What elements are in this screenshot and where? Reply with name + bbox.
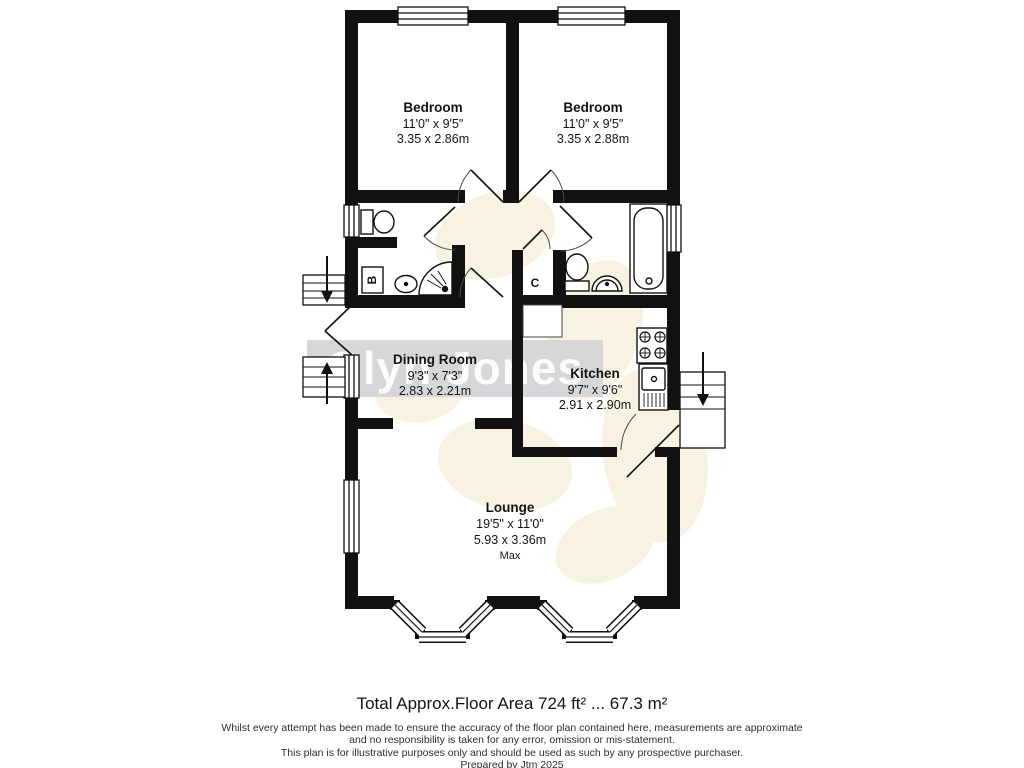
- svg-text:5.93 x 3.36m: 5.93 x 3.36m: [474, 533, 546, 547]
- svg-text:11'0" x 9'5": 11'0" x 9'5": [563, 117, 624, 131]
- entrance-steps-upper: [303, 256, 345, 305]
- lounge-side-window: [344, 480, 359, 553]
- bedroom-1-label: Bedroom 11'0" x 9'5" 3.35 x 2.86m: [397, 100, 469, 146]
- bedroom-2-label: Bedroom 11'0" x 9'5" 3.35 x 2.88m: [557, 100, 629, 146]
- svg-text:2.91 x 2.90m: 2.91 x 2.90m: [559, 398, 631, 412]
- svg-text:Bedroom: Bedroom: [403, 100, 462, 115]
- svg-text:Dining Room: Dining Room: [393, 352, 477, 367]
- svg-text:2.83 x 2.21m: 2.83 x 2.21m: [399, 384, 471, 398]
- cupboard-marker: C: [531, 276, 540, 290]
- toilet-icon-bathroom: [565, 254, 589, 291]
- bath-icon: [630, 204, 667, 293]
- svg-text:Max: Max: [500, 550, 521, 562]
- hob-icon: [637, 328, 667, 363]
- disclaimer-line-2: and no responsibility is taken for any e…: [0, 734, 1024, 746]
- floor-plan-page: Glyn Jones: [0, 0, 1024, 768]
- svg-text:9'3" x 7'3": 9'3" x 7'3": [408, 369, 463, 383]
- svg-text:9'7" x 9'6": 9'7" x 9'6": [568, 383, 623, 397]
- entrance-door-leaf-a: [325, 305, 352, 331]
- bedroom-1-window: [398, 7, 468, 25]
- bathroom-window: [666, 205, 681, 252]
- disclaimer-line-3: This plan is for illustrative purposes o…: [0, 747, 1024, 759]
- dining-window: [344, 355, 359, 398]
- total-area-text: Total Approx.Floor Area 724 ft² ... 67.3…: [0, 694, 1024, 714]
- bay-window-left: [390, 600, 495, 639]
- svg-text:11'0" x 9'5": 11'0" x 9'5": [403, 117, 464, 131]
- svg-text:3.35 x 2.88m: 3.35 x 2.88m: [557, 132, 629, 146]
- lounge-label: Lounge 19'5" x 11'0" 5.93 x 3.36m Max: [474, 500, 546, 562]
- svg-text:19'5" x 11'0": 19'5" x 11'0": [476, 517, 544, 531]
- basin-icon-shower-room: [395, 276, 417, 293]
- bathroom-door-arc: [560, 238, 592, 251]
- toilet-icon-shower-room: [361, 210, 394, 234]
- sink-unit-icon: [639, 364, 668, 410]
- kitchen-steps: [680, 352, 725, 448]
- svg-text:3.35 x 2.86m: 3.35 x 2.86m: [397, 132, 469, 146]
- disclaimer: Whilst every attempt has been made to en…: [0, 722, 1024, 768]
- floor-plan: Glyn Jones: [0, 0, 1024, 768]
- prepared-by: Prepared by Jtm 2025: [0, 759, 1024, 768]
- boiler-marker: B: [365, 275, 379, 284]
- corner-shower-icon: [419, 262, 452, 295]
- svg-text:Bedroom: Bedroom: [563, 100, 622, 115]
- svg-text:Kitchen: Kitchen: [570, 366, 620, 381]
- kitchen-counter: [523, 305, 562, 337]
- svg-text:Lounge: Lounge: [486, 500, 535, 515]
- entrance-steps-lower: [303, 357, 345, 404]
- bay-window-right: [537, 600, 642, 639]
- shower-room-window: [344, 205, 359, 237]
- bedroom-2-window: [558, 7, 625, 25]
- disclaimer-line-1: Whilst every attempt has been made to en…: [0, 722, 1024, 734]
- bathroom-door-leaf: [560, 206, 592, 238]
